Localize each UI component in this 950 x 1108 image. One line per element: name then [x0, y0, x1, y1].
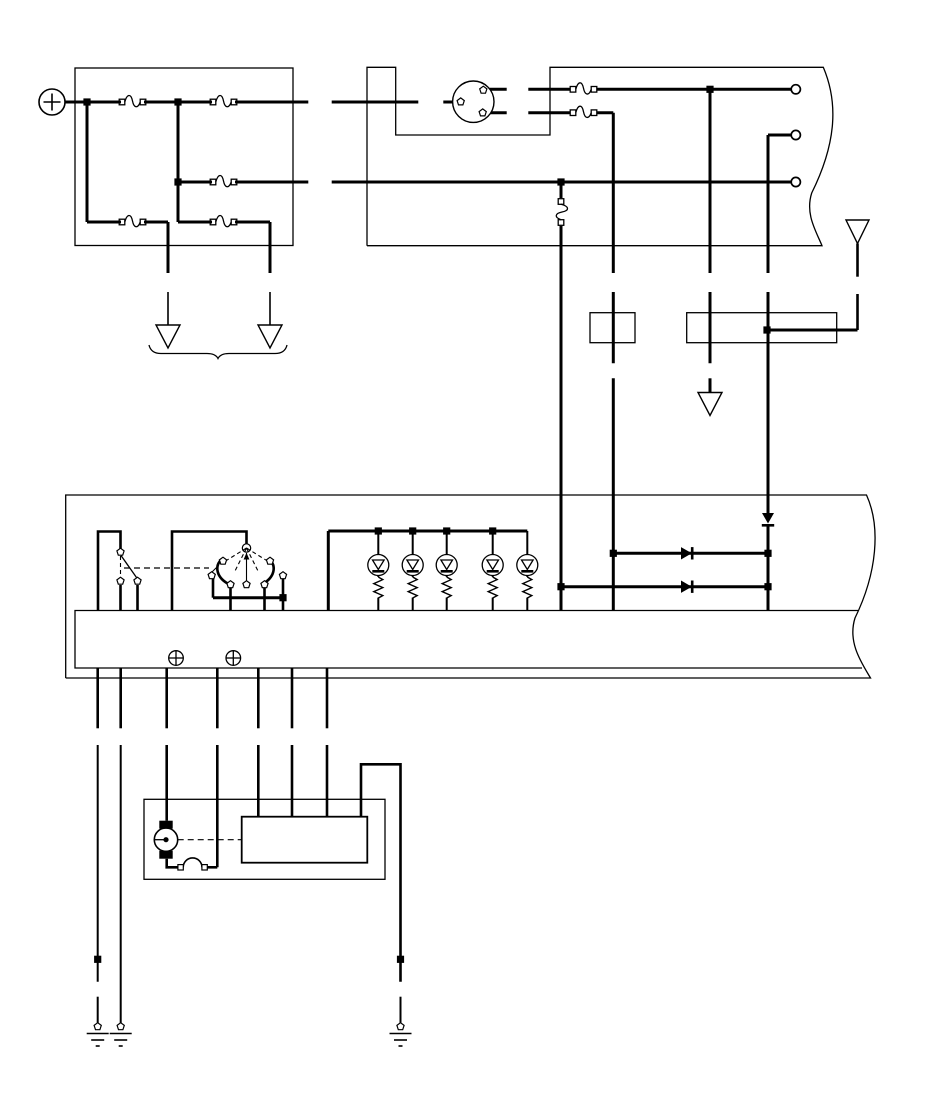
- led-resistor-array: [328, 527, 538, 610]
- junction-dot: [764, 583, 771, 590]
- switch-terminal: [117, 577, 124, 584]
- diode-down-icon: [762, 513, 774, 525]
- led-branch: [402, 527, 423, 610]
- junction-dot: [763, 326, 770, 333]
- led-icon: [482, 555, 503, 576]
- led-icon: [517, 555, 538, 576]
- junction-dot: [489, 527, 496, 534]
- antenna-icon: [846, 220, 869, 244]
- resistor-icon: [488, 577, 497, 598]
- antenna: [846, 220, 869, 330]
- splice-dot: [397, 956, 404, 963]
- fuse-icon: [119, 215, 146, 226]
- mount-screw-icon: [169, 651, 184, 666]
- harness-terminal: [791, 130, 800, 139]
- rotary-switch: [172, 532, 287, 611]
- junction-dot: [706, 86, 713, 93]
- motor-assembly-box: [144, 799, 385, 879]
- junction-dot: [764, 550, 771, 557]
- diode-icon: [681, 581, 692, 593]
- resistor-icon: [442, 577, 451, 598]
- switch-terminal: [243, 581, 250, 588]
- junction-dot: [83, 98, 90, 105]
- ignition-switch: [453, 81, 494, 122]
- fuse-icon: [210, 215, 237, 226]
- torn-edge-box-outline: [367, 67, 833, 245]
- bridge-connector-arc: [183, 858, 202, 867]
- driver-module: [242, 817, 368, 863]
- motor-brush: [159, 821, 172, 829]
- led-branch: [368, 527, 389, 610]
- switch-blade: [121, 556, 137, 578]
- main-fuse-block: [65, 68, 308, 273]
- connector-terminal: [202, 865, 207, 870]
- junction-dot: [375, 527, 382, 534]
- resistor-icon: [523, 577, 532, 598]
- wiring-diagram-canvas: [0, 0, 950, 1108]
- motor: [154, 821, 177, 859]
- resistor-icon: [374, 577, 383, 598]
- vertical-fuse-icon: [556, 199, 567, 226]
- diode-icon: [681, 547, 692, 559]
- down-arrow-icon: [698, 393, 722, 416]
- fuse-icon: [210, 95, 237, 106]
- junction-dot: [174, 178, 181, 185]
- schematic-page: [0, 0, 950, 1108]
- junction-dot: [409, 527, 416, 534]
- ground-icon: [87, 1023, 109, 1046]
- led-icon: [402, 555, 423, 576]
- switch-terminal: [266, 557, 273, 564]
- led-branch: [436, 527, 457, 610]
- controller-box: [66, 495, 875, 678]
- switch-terminal: [279, 572, 286, 579]
- off-page-arrows-left: [149, 292, 287, 359]
- fuse-icon: [570, 106, 597, 117]
- led-branch: [482, 527, 503, 610]
- switch-terminal: [227, 581, 234, 588]
- led-icon: [436, 555, 457, 576]
- fuse-icon: [119, 95, 146, 106]
- motor-brush: [159, 851, 172, 859]
- junction-dot: [557, 583, 564, 590]
- diode-network: [557, 513, 774, 593]
- resistor-icon: [408, 577, 417, 598]
- lower-harness-wires: [94, 668, 327, 1023]
- module-ground-wire: [361, 764, 404, 1023]
- switch-terminal: [117, 548, 124, 555]
- mount-screw-icon: [226, 651, 241, 666]
- group-brace: [149, 345, 287, 359]
- ground-icon: [390, 1023, 412, 1046]
- junction-dot: [174, 98, 181, 105]
- harness-terminal: [791, 85, 800, 94]
- fuse-block-outline: [75, 68, 293, 246]
- connector-strip: [75, 611, 862, 669]
- led-branch: [517, 531, 538, 611]
- switch-terminal: [134, 577, 141, 584]
- battery-positive-symbol: [39, 89, 65, 115]
- switch-terminal: [219, 557, 226, 564]
- junction-dot: [610, 550, 617, 557]
- down-arrow-icon: [156, 325, 180, 348]
- junction-dot: [557, 178, 564, 185]
- chassis-grounds: [87, 1023, 412, 1046]
- harness-terminal: [791, 177, 800, 186]
- inline-component-boxes: [590, 313, 858, 343]
- switch-terminal: [208, 572, 215, 579]
- fuse-icon: [570, 83, 597, 94]
- led-icon: [368, 555, 389, 576]
- ground-icon: [110, 1023, 132, 1046]
- junction-dot: [279, 594, 286, 601]
- splice-dot: [94, 956, 101, 963]
- junction-dot: [443, 527, 450, 534]
- toggle-switch: [98, 532, 141, 611]
- fuse-icon: [210, 175, 237, 186]
- down-arrow-icon: [258, 325, 282, 348]
- connector-terminal: [178, 865, 183, 870]
